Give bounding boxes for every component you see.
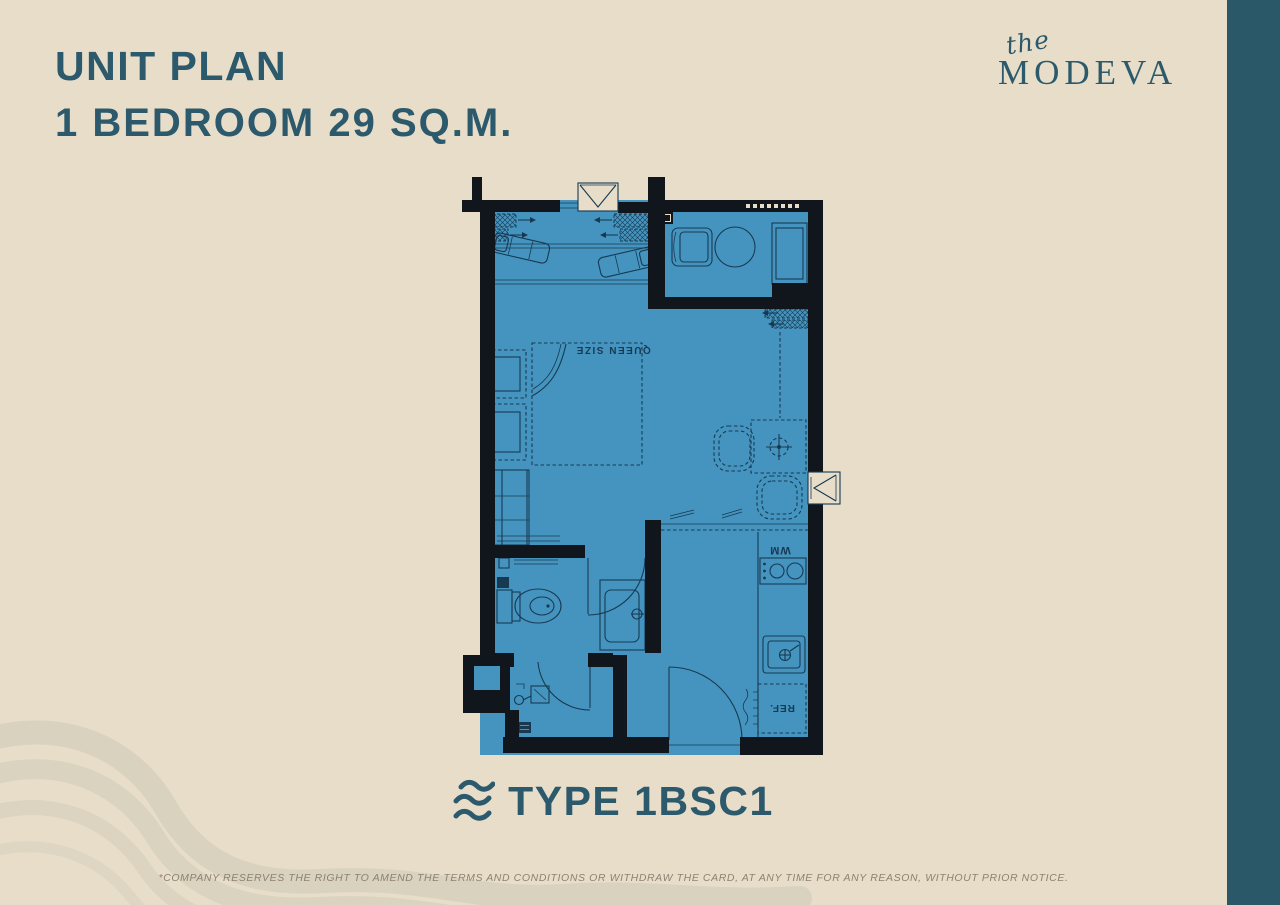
triple-wave-icon (453, 779, 495, 825)
floor-plan: QUEEN SIZE (450, 165, 860, 765)
brand-name: MODEVA (998, 53, 1177, 93)
title-line-2: 1 BEDROOM 29 SQ.M. (55, 103, 513, 143)
unit-type-caption: TYPE 1BSC1 (0, 778, 1227, 825)
title-line-1: UNIT PLAN (55, 46, 513, 87)
floor-drain (497, 577, 509, 588)
ac-condenser-right (808, 472, 840, 504)
shower-drain (518, 722, 531, 733)
unit-type-label: TYPE 1BSC1 (508, 778, 774, 825)
floor-plan-drawing: QUEEN SIZE (450, 165, 860, 765)
bed-size-label: QUEEN SIZE (575, 344, 651, 355)
refrigerator-label: REF. (769, 702, 795, 713)
disclaimer-text: *COMPANY RESERVES THE RIGHT TO AMEND THE… (0, 872, 1227, 884)
page-title: UNIT PLAN 1 BEDROOM 29 SQ.M. (55, 46, 513, 143)
unit-plan-brochure-page: UNIT PLAN 1 BEDROOM 29 SQ.M. the MODEVA (0, 0, 1280, 905)
washing-machine-label: WM (769, 544, 791, 556)
ac-condenser-top (578, 183, 618, 211)
brand-logo: the MODEVA (998, 26, 1193, 106)
right-accent-band (1227, 0, 1280, 905)
